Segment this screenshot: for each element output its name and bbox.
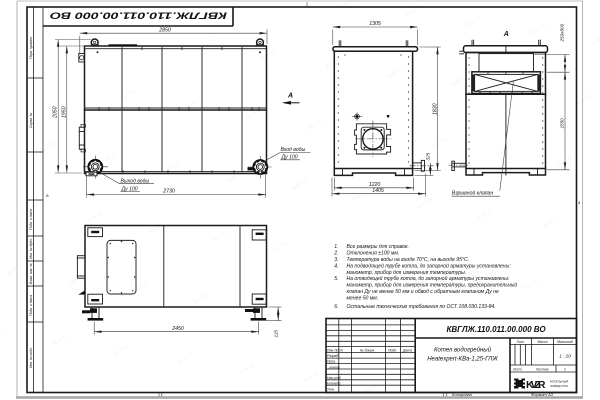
svg-text:На отводящей трубе котла, до з: На отводящей трубе котла, до запорной ар… <box>347 275 510 282</box>
svg-text:1: 1 <box>564 368 566 372</box>
svg-text:манометр, прибор для измерения: манометр, прибор для измерения температу… <box>347 282 518 289</box>
svg-text:Листов: Листов <box>535 368 549 372</box>
svg-text:1830: 1830 <box>432 103 438 115</box>
svg-text:Изм Лист: Изм Лист <box>327 348 343 352</box>
svg-text:Справ. №: Справ. № <box>29 112 33 128</box>
svg-text:Подп. и дата: Подп. и дата <box>29 295 33 316</box>
svg-text:Масса: Масса <box>537 340 547 344</box>
svg-text:На подводящей трубе котла, до: На подводящей трубе котла, до запорной а… <box>347 262 512 269</box>
svg-text:ЗАВОД РУСЬ: ЗАВОД РУСЬ <box>550 384 568 388</box>
svg-text:Инв. № подл.: Инв. № подл. <box>29 347 33 368</box>
svg-text:А: А <box>45 193 49 198</box>
svg-text:Все размеры для справок.: Все размеры для справок. <box>347 244 409 250</box>
svg-text:Разраб.: Разраб. <box>327 354 339 358</box>
svg-text:Лит.: Лит. <box>516 340 525 344</box>
svg-text:КВГЛЖ.110.011.00.000 ВО: КВГЛЖ.110.011.00.000 ВО <box>50 10 227 20</box>
svg-text:А: А <box>287 93 293 100</box>
svg-text:Остальные технические требован: Остальные технические требования по ОСТ … <box>347 304 496 310</box>
svg-text:2450: 2450 <box>171 326 184 332</box>
svg-text:2730: 2730 <box>162 189 175 195</box>
svg-text:Масштаб: Масштаб <box>557 340 573 344</box>
svg-text:1 : 20: 1 : 20 <box>559 354 571 359</box>
svg-text:5.: 5. <box>334 276 338 282</box>
svg-text:Взам. инв. №: Взам. инв. № <box>29 263 33 284</box>
svg-text:Дата: Дата <box>402 348 412 352</box>
svg-text:3.: 3. <box>334 257 338 263</box>
svg-text:Температура воды на входе 70°С: Температура воды на входе 70°С, на выход… <box>347 257 470 263</box>
svg-text:115: 115 <box>274 330 279 338</box>
svg-text:Н.контр.: Н.контр. <box>327 381 341 385</box>
svg-text:Выход воды: Выход воды <box>121 178 150 184</box>
svg-text:№ докум.: № докум. <box>360 348 375 352</box>
svg-text:Подп.: Подп. <box>388 348 397 352</box>
svg-text:1950: 1950 <box>62 106 68 118</box>
svg-text:Отклонения ±100 мм.: Отклонения ±100 мм. <box>347 251 400 257</box>
svg-text:Вход воды: Вход воды <box>281 147 306 153</box>
svg-text:Лист: Лист <box>512 368 522 372</box>
svg-text:4.: 4. <box>334 263 338 269</box>
svg-text:6.: 6. <box>334 304 338 310</box>
svg-text:манометр, прибор для измерения: манометр, прибор для измерения температу… <box>347 270 467 276</box>
svg-text:Нач.отд.: Нач.отд. <box>327 376 341 380</box>
svg-text:KVZR: KVZR <box>526 379 546 391</box>
svg-text:1: 1 <box>161 392 163 397</box>
svg-text:менее 50 мм.: менее 50 мм. <box>347 295 379 301</box>
svg-text:Взрывной клапан: Взрывной клапан <box>452 190 494 197</box>
svg-text:1.: 1. <box>334 244 338 250</box>
svg-text:Копировал: Копировал <box>452 392 473 397</box>
svg-text:325: 325 <box>425 152 430 160</box>
svg-text:Подп. и дата: Подп. и дата <box>29 209 33 230</box>
svg-text:Утв.: Утв. <box>327 388 335 392</box>
svg-text:250х800: 250х800 <box>560 23 565 42</box>
svg-text:Пров.: Пров. <box>327 360 336 364</box>
svg-text:2050: 2050 <box>53 106 59 119</box>
svg-text:Перв. примен.: Перв. примен. <box>29 36 33 59</box>
svg-text:клапан Ду не менее 50 мм и обв: клапан Ду не менее 50 мм и обвод с обрат… <box>347 289 499 295</box>
svg-text:1550: 1550 <box>560 118 565 129</box>
svg-text:Котел водогрейный: Котел водогрейный <box>434 347 492 354</box>
svg-text:1405: 1405 <box>372 188 384 194</box>
svg-text:Формат А3: Формат А3 <box>531 392 554 397</box>
svg-text:А: А <box>503 31 509 38</box>
svg-text:.контр.: .контр. <box>329 365 341 369</box>
svg-text:1305: 1305 <box>369 21 381 27</box>
svg-text:Инв. № дубл.: Инв. № дубл. <box>29 238 33 259</box>
svg-text:КВГЛЖ.110.011.00.000 ВО: КВГЛЖ.110.011.00.000 ВО <box>446 325 546 334</box>
svg-text:2.: 2. <box>333 251 338 257</box>
svg-text:Heatexpert-КВа-1,25-ГЛЖ: Heatexpert-КВа-1,25-ГЛЖ <box>427 357 498 363</box>
svg-text:2850: 2850 <box>158 27 171 33</box>
svg-text:1: 1 <box>446 392 448 397</box>
